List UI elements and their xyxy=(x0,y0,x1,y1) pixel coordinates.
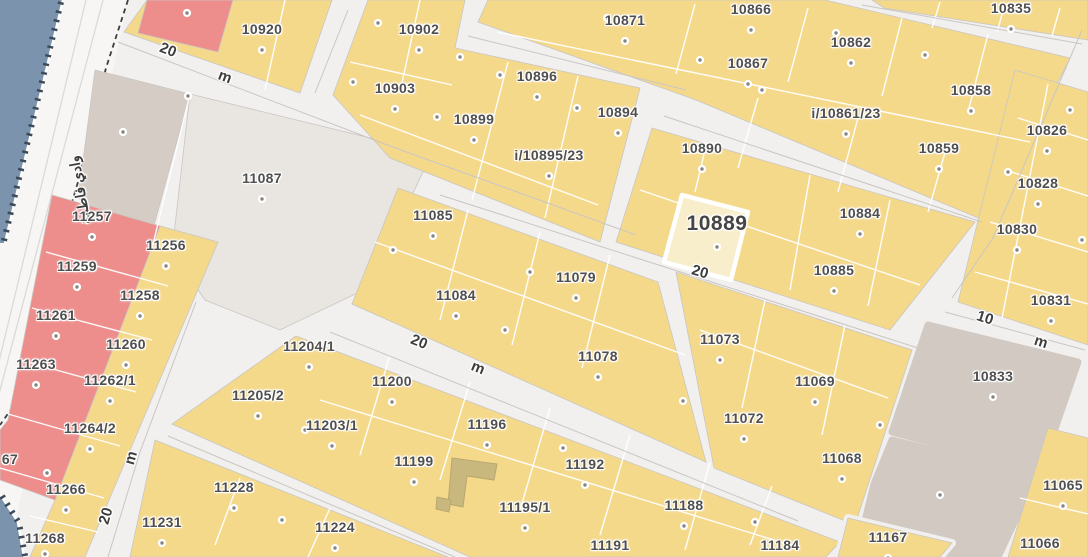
parcel-dot-center xyxy=(858,232,861,235)
parcel-dot-center xyxy=(431,234,434,237)
parcel-dot-center xyxy=(186,94,189,97)
parcel-dot-center xyxy=(832,289,835,292)
parcel-dot-center xyxy=(1049,319,1052,322)
parcel-dot-center xyxy=(417,48,420,51)
parcel-dot-center xyxy=(1036,202,1039,205)
parcel-label[interactable]: 10885 xyxy=(814,262,854,278)
parcel-dot-center xyxy=(376,21,379,24)
parcel-dot-center xyxy=(393,107,396,110)
parcel-label[interactable]: 11268 xyxy=(25,530,65,546)
parcel-dot-center xyxy=(124,363,127,366)
map-canvas[interactable]: وادي فاطمة 10920109021087110866108351090… xyxy=(0,0,1088,557)
parcel-dot-center xyxy=(164,264,167,267)
parcel-dot-center xyxy=(333,546,336,549)
parcel-label[interactable]: 11072 xyxy=(724,410,764,426)
parcel-dot-center xyxy=(75,285,78,288)
parcel-dot-center xyxy=(1015,248,1018,251)
highlighted-parcel-10889[interactable] xyxy=(664,195,748,280)
parcel-label[interactable]: 10830 xyxy=(997,221,1037,237)
parcel-label[interactable]: 10871 xyxy=(605,12,645,28)
parcel-label[interactable]: 10866 xyxy=(731,1,771,17)
parcel-dot-center xyxy=(760,88,763,91)
parcel-label[interactable]: 11199 xyxy=(395,453,434,469)
parcel-label[interactable]: 11184 xyxy=(761,537,800,553)
parcel-label[interactable]: 11263 xyxy=(16,356,56,372)
parcel-label[interactable]: 11264/2 xyxy=(64,420,116,436)
parcel-dot-center xyxy=(681,399,684,402)
parcel-label[interactable]: 11203/1 xyxy=(306,417,358,433)
parcel-dot-center xyxy=(256,414,259,417)
parcel-label[interactable]: i/10895/23 xyxy=(514,147,583,163)
parcel-dot-center xyxy=(45,471,48,474)
parcel-dot-center xyxy=(849,61,852,64)
parcel-label[interactable]: 11069 xyxy=(795,373,835,389)
parcel-label[interactable]: 10920 xyxy=(242,21,282,37)
parcel-label[interactable]: 11228 xyxy=(214,479,254,495)
parcel-dot-center xyxy=(1045,149,1048,152)
parcel-label[interactable]: 10902 xyxy=(399,21,439,37)
parcel-label[interactable]: 11085 xyxy=(413,207,453,223)
parcel-label[interactable]: 10903 xyxy=(375,80,415,96)
parcel-label[interactable]: 11261 xyxy=(36,307,76,323)
parcel-label[interactable]: 11066 xyxy=(1020,535,1060,551)
parcel-label[interactable]: 10899 xyxy=(454,111,494,127)
parcel-dot-center xyxy=(700,167,703,170)
parcel-dot-center xyxy=(185,11,188,14)
parcel-dot-center xyxy=(138,314,141,317)
parcel-dot-center xyxy=(938,493,941,496)
parcel-dot-center xyxy=(840,477,843,480)
parcel-dot-center xyxy=(391,248,394,251)
parcel-label[interactable]: 11266 xyxy=(46,481,86,497)
parcel-dot-center xyxy=(435,115,438,118)
parcel-label[interactable]: 11084 xyxy=(436,287,476,303)
parcel-dot-center xyxy=(742,437,745,440)
parcel-label[interactable]: 11200 xyxy=(372,373,412,389)
parcel-label[interactable]: 11258 xyxy=(120,287,160,303)
parcel-dot-center xyxy=(718,358,721,361)
parcel-label[interactable]: 11260 xyxy=(106,336,146,352)
parcel-dot-center xyxy=(260,197,263,200)
parcel-dot-center xyxy=(260,48,263,51)
parcel-label[interactable]: 10833 xyxy=(973,368,1013,384)
parcel-dot-center xyxy=(280,518,283,521)
parcel-label[interactable]: 11073 xyxy=(700,331,740,347)
parcel-label[interactable]: 10894 xyxy=(598,104,638,120)
parcel-dot-center xyxy=(1009,27,1012,30)
parcel-label[interactable]: 11204/1 xyxy=(283,338,335,354)
parcel-dot-center xyxy=(498,73,501,76)
parcel-label[interactable]: 10835 xyxy=(991,0,1031,16)
parcel-dot-center xyxy=(698,58,701,61)
parcel-label[interactable]: 10859 xyxy=(919,140,959,156)
parcel-dot-center xyxy=(330,444,333,447)
parcel-label[interactable]: 10831 xyxy=(1031,292,1071,308)
parcel-label[interactable]: 11224 xyxy=(315,519,355,535)
parcel-dot-center xyxy=(454,314,457,317)
parcel-dot-center xyxy=(715,245,718,248)
parcel-dot-center xyxy=(682,524,685,527)
parcel-dot-center xyxy=(458,55,461,58)
parcel-dot-center xyxy=(1061,504,1064,507)
parcel-dot-center xyxy=(583,483,586,486)
parcel-label[interactable]: 10828 xyxy=(1018,175,1058,191)
parcel-label[interactable]: 10896 xyxy=(517,68,557,84)
parcel-label[interactable]: 11192 xyxy=(566,456,605,472)
parcel-dot-center xyxy=(160,541,163,544)
parcel-dot-center xyxy=(561,446,564,449)
parcel-label[interactable]: 11257 xyxy=(72,208,112,224)
parcel-label[interactable]: 10862 xyxy=(831,34,871,50)
parcel-dot-center xyxy=(969,109,972,112)
parcel-dot-center xyxy=(307,365,310,368)
parcel-dot-center xyxy=(574,296,577,299)
parcel-dot-center xyxy=(472,138,475,141)
parcel-dot-center xyxy=(232,506,235,509)
parcel-label[interactable]: 10858 xyxy=(951,82,991,98)
parcel-dot-center xyxy=(54,334,57,337)
parcel-dot-center xyxy=(991,395,994,398)
parcel-label[interactable]: 11167 xyxy=(869,529,908,545)
parcel-dot-center xyxy=(923,53,926,56)
parcel-label[interactable]: 10867 xyxy=(728,55,768,71)
parcel-label[interactable]: 11191 xyxy=(591,537,630,553)
parcel-label[interactable]: 11065 xyxy=(1043,477,1083,493)
parcel-label[interactable]: 11256 xyxy=(146,237,186,253)
parcel-dot-center xyxy=(88,447,91,450)
building-footprint xyxy=(436,497,451,512)
parcel-dot-center xyxy=(596,375,599,378)
parcel-label[interactable]: 11087 xyxy=(242,170,282,186)
parcel-dot-center xyxy=(528,270,531,273)
parcel-dot-center xyxy=(351,80,354,83)
parcel-dot-center xyxy=(753,520,756,523)
parcel-dot-center xyxy=(390,400,393,403)
parcel-label[interactable]: 10884 xyxy=(840,205,880,221)
parcel-dot-center xyxy=(535,95,538,98)
parcel-label[interactable]: 11259 xyxy=(57,258,97,274)
parcel-label[interactable]: 11231 xyxy=(142,514,182,530)
parcel-dot-center xyxy=(64,508,67,511)
parcel-dot-center xyxy=(1006,170,1009,173)
parcel-dot-center xyxy=(412,480,415,483)
parcel-dot-center xyxy=(43,552,46,555)
parcel-block-pink-north[interactable] xyxy=(138,0,233,52)
parcel-dot-center xyxy=(108,399,111,402)
parcel-dot-center xyxy=(523,526,526,529)
parcel-dot-center xyxy=(1068,108,1071,111)
parcel-dot-center xyxy=(90,235,93,238)
parcel-dot-center xyxy=(616,131,619,134)
parcel-label[interactable]: 10826 xyxy=(1027,122,1067,138)
parcel-label[interactable]: 11195/1 xyxy=(499,499,550,515)
parcel-label[interactable]: 11079 xyxy=(556,269,596,285)
parcel-label[interactable]: 67 xyxy=(2,451,18,467)
parcel-label[interactable]: 11068 xyxy=(822,450,862,466)
parcel-dot-center xyxy=(746,82,749,85)
parcel-dot-center xyxy=(937,167,940,170)
parcel-dot-center xyxy=(547,174,550,177)
parcel-dot-center xyxy=(749,28,752,31)
parcel-label[interactable]: 11205/2 xyxy=(232,387,284,403)
parcel-dot-center xyxy=(1080,238,1083,241)
parcel-dot-center xyxy=(485,443,488,446)
parcel-label[interactable]: 10890 xyxy=(682,140,722,156)
parcel-dot-center xyxy=(623,39,626,42)
parcel-dot-center xyxy=(813,400,816,403)
parcel-dot-center xyxy=(575,106,578,109)
parcel-label[interactable]: 11188 xyxy=(665,497,704,513)
parcel-label[interactable]: 11078 xyxy=(578,348,618,364)
parcel-label[interactable]: 10889 xyxy=(687,212,748,236)
parcel-dot-center xyxy=(844,132,847,135)
parcel-label[interactable]: 11196 xyxy=(468,416,507,432)
parcel-label[interactable]: i/10861/23 xyxy=(811,105,880,121)
parcel-dot-center xyxy=(878,423,881,426)
parcel-dot-center xyxy=(34,383,37,386)
parcel-dot-center xyxy=(121,130,124,133)
parcel-label[interactable]: 11262/1 xyxy=(84,372,136,388)
parcel-dot-center xyxy=(503,328,506,331)
